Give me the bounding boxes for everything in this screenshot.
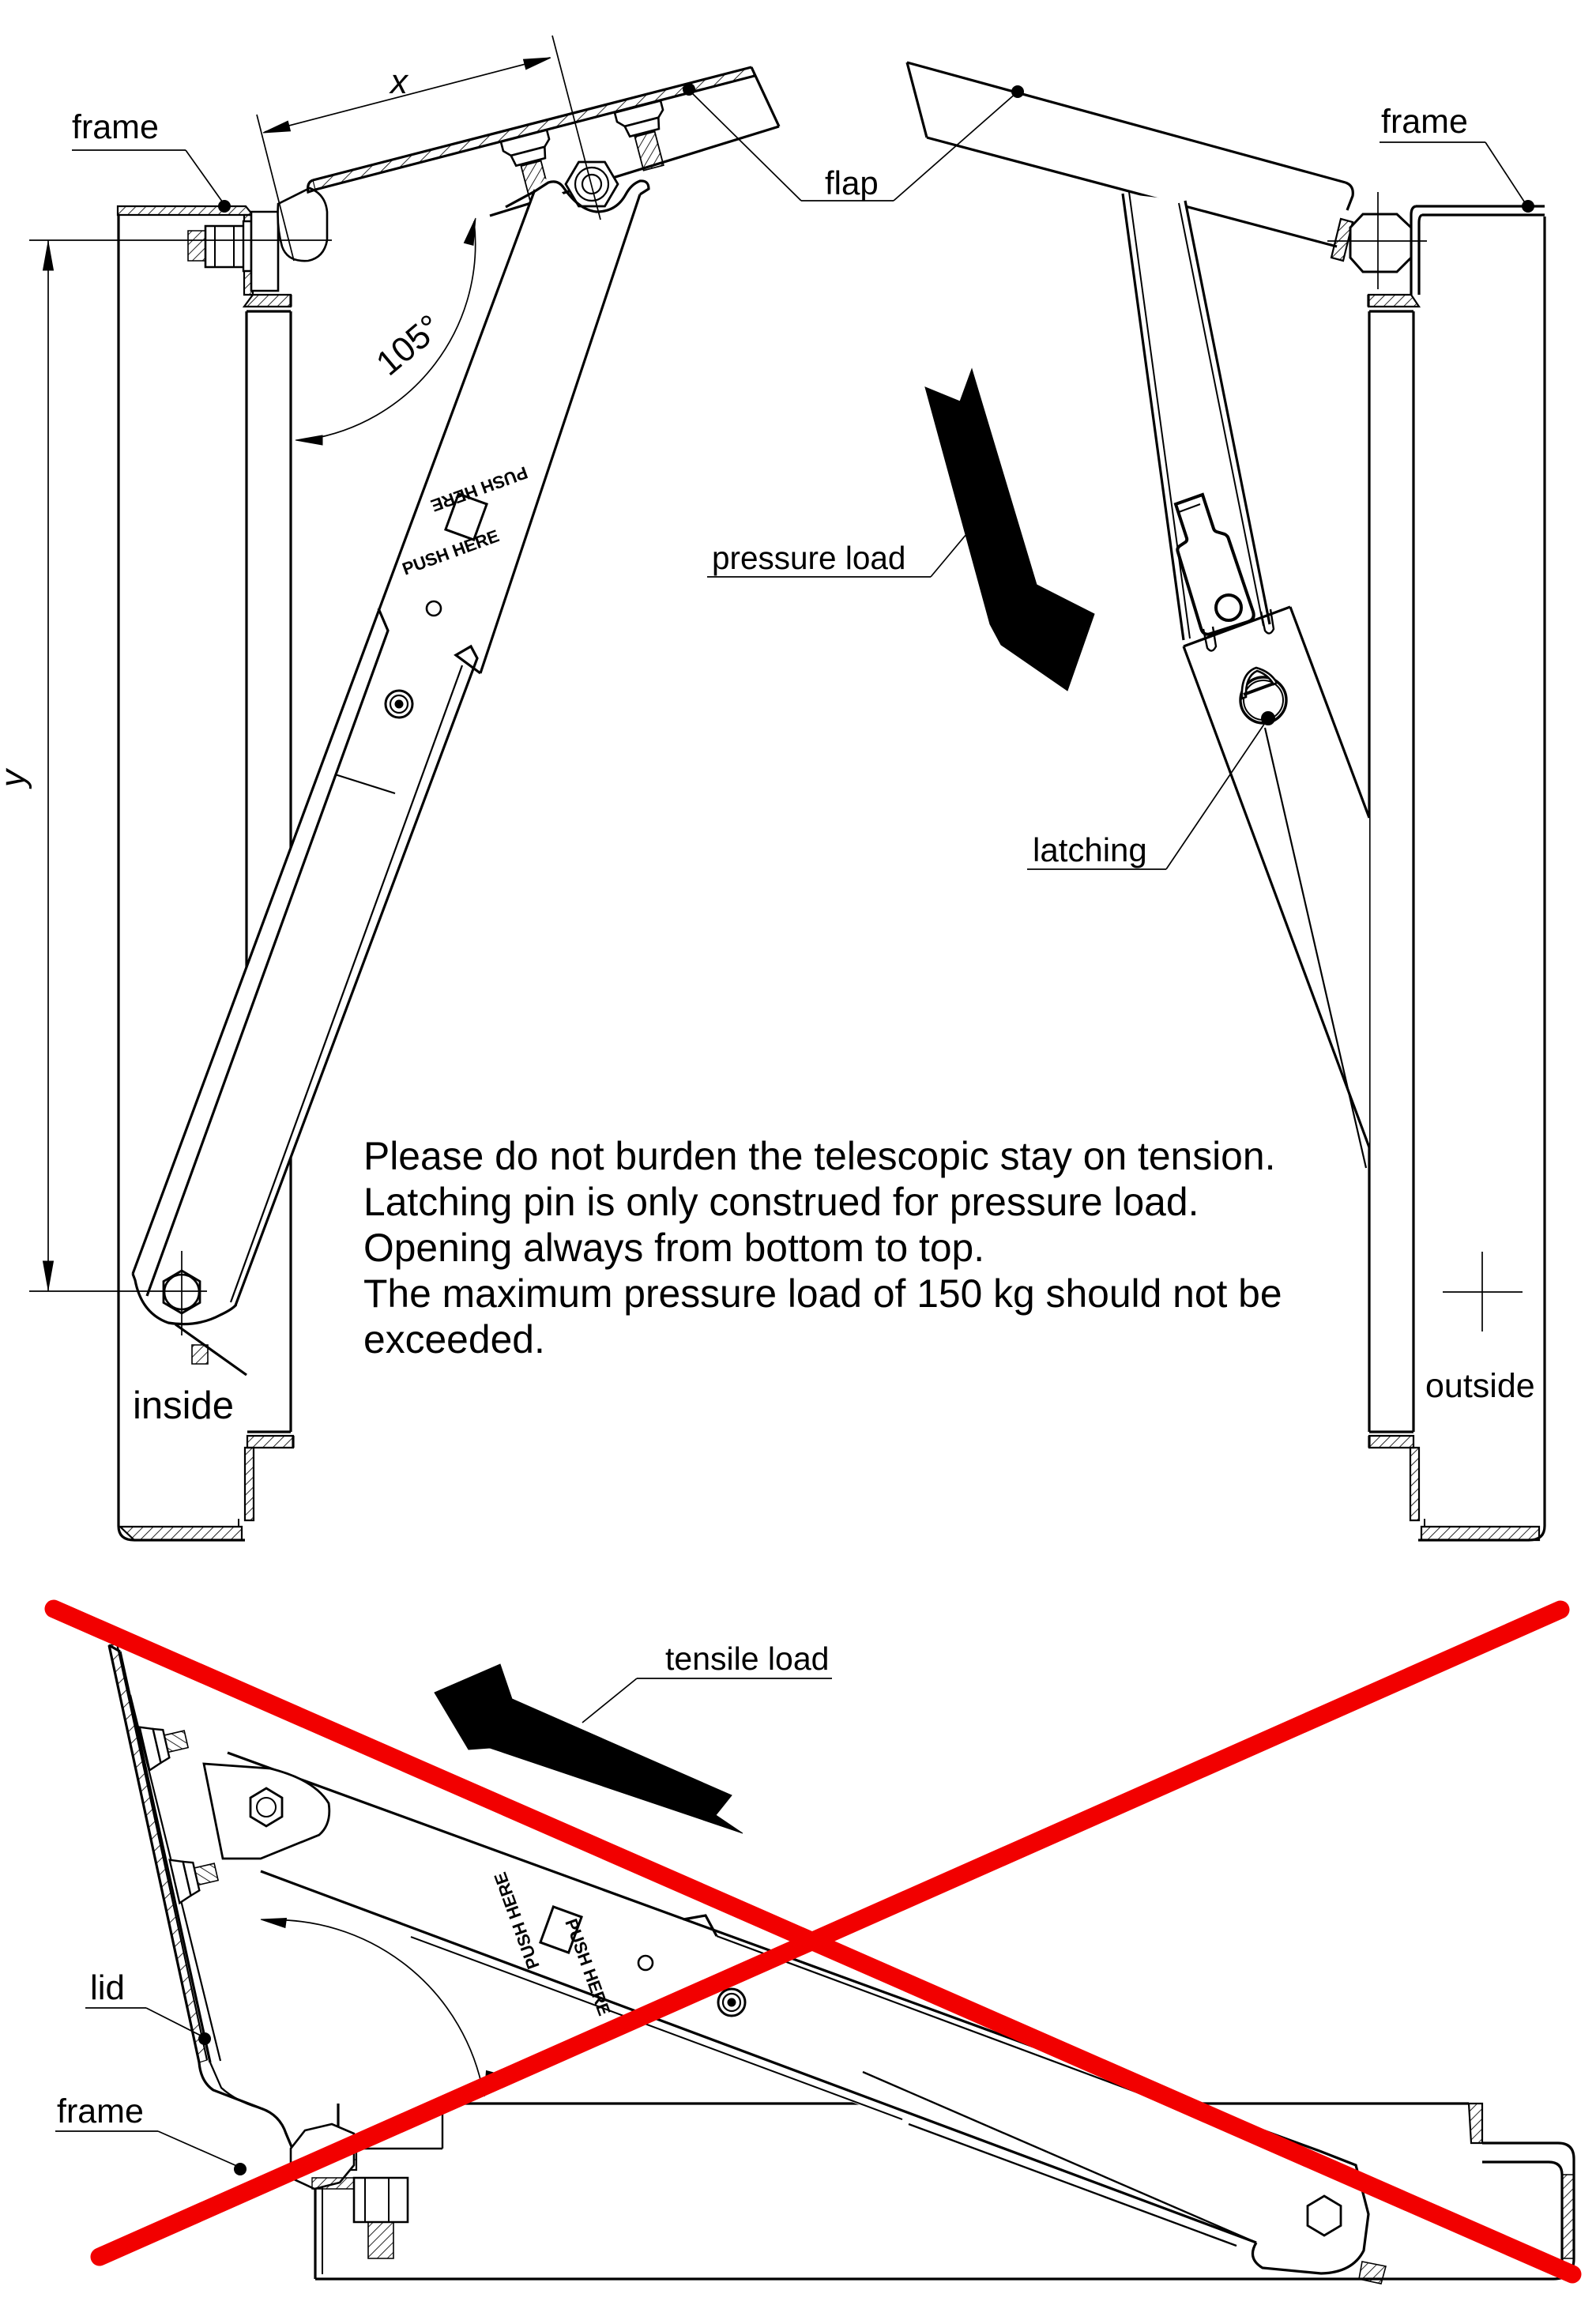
svg-text:exceeded.: exceeded. xyxy=(363,1317,545,1362)
svg-text:frame: frame xyxy=(1381,103,1468,141)
svg-text:frame: frame xyxy=(57,2092,144,2130)
svg-text:flap: flap xyxy=(825,164,879,202)
svg-text:Please do not burden the teles: Please do not burden the telescopic stay… xyxy=(363,1134,1275,1178)
svg-text:outside: outside xyxy=(1425,1367,1535,1405)
svg-text:frame: frame xyxy=(72,108,159,146)
svg-text:lid: lid xyxy=(90,1968,125,2007)
svg-text:y: y xyxy=(0,767,32,789)
svg-text:The maximum pressure load of 1: The maximum pressure load of 150 kg shou… xyxy=(363,1271,1282,1316)
svg-text:pressure load: pressure load xyxy=(712,540,905,576)
svg-text:Opening always from bottom to: Opening always from bottom to top. xyxy=(363,1226,984,1270)
svg-text:latching: latching xyxy=(1033,831,1147,868)
svg-text:Latching pin is only construed: Latching pin is only construed for press… xyxy=(363,1180,1199,1224)
svg-text:tensile load: tensile load xyxy=(665,1640,829,1677)
svg-text:inside: inside xyxy=(133,1384,234,1427)
svg-text:x: x xyxy=(389,62,409,101)
